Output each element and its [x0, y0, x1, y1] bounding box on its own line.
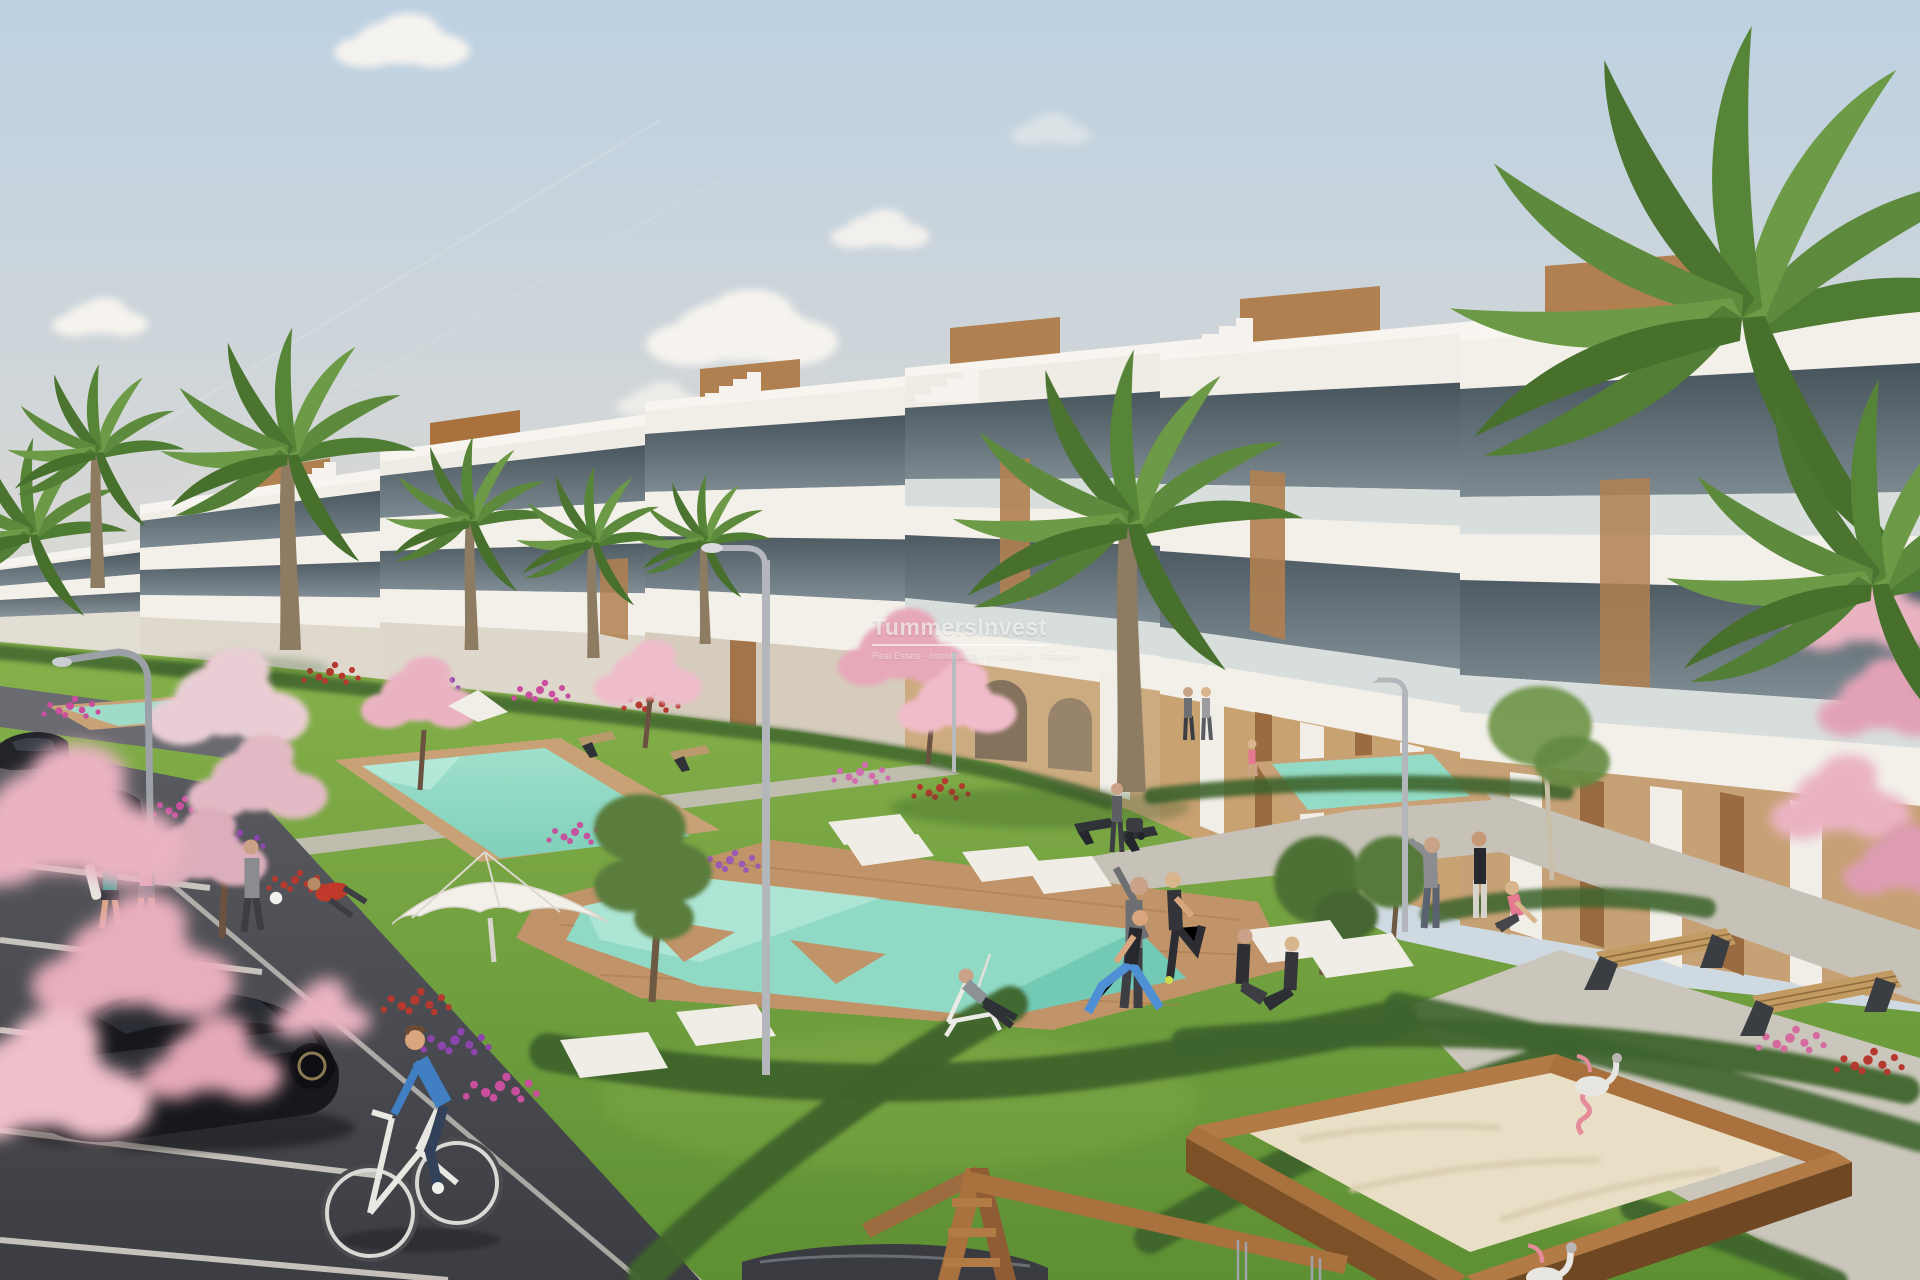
swing-rung [944, 1258, 1000, 1267]
head [1472, 832, 1487, 847]
torso [1242, 944, 1244, 984]
head [308, 878, 321, 891]
head [1132, 910, 1148, 926]
swan-head [1612, 1053, 1622, 1063]
shadow [340, 1228, 500, 1252]
torso [1174, 890, 1176, 930]
stroller-wheel [1137, 832, 1145, 840]
lamp-head [52, 657, 72, 667]
head [1111, 783, 1123, 795]
head [1183, 687, 1193, 697]
swan-body [1575, 1076, 1609, 1096]
stroller-wheel [1126, 832, 1134, 840]
head [1248, 740, 1257, 749]
wood-panel [1600, 478, 1650, 700]
car-wheel [289, 1043, 335, 1089]
head [1285, 937, 1300, 952]
lamp-head [1362, 674, 1378, 682]
shoe [1165, 976, 1173, 984]
swing-rung [952, 1198, 992, 1207]
head [1424, 837, 1440, 853]
soccer-ball [269, 891, 283, 905]
head [1238, 929, 1253, 944]
head [1165, 872, 1181, 888]
head [1130, 877, 1148, 895]
wood-panel [730, 640, 756, 730]
lamp-pole [1402, 690, 1408, 932]
stroller [1126, 818, 1143, 832]
swing-rung [948, 1228, 996, 1237]
sport-top [1131, 928, 1136, 964]
head [1201, 687, 1211, 697]
lamp-pole [762, 560, 770, 1075]
tree-canopy [1534, 736, 1610, 788]
cyclist-shoe [432, 1182, 444, 1194]
head [1505, 881, 1519, 895]
wood-panel [1250, 470, 1285, 640]
lamp-pole [952, 652, 956, 772]
tree-shadow [890, 788, 1190, 828]
render-image: TummersInvest Real Estate - Inmobiliaria… [0, 0, 1920, 1280]
arcade-arch [1048, 698, 1092, 772]
torso [1290, 952, 1292, 990]
shorts [101, 890, 119, 900]
swan-head [1566, 1242, 1577, 1253]
head [244, 840, 259, 855]
lamp-head [701, 543, 723, 553]
